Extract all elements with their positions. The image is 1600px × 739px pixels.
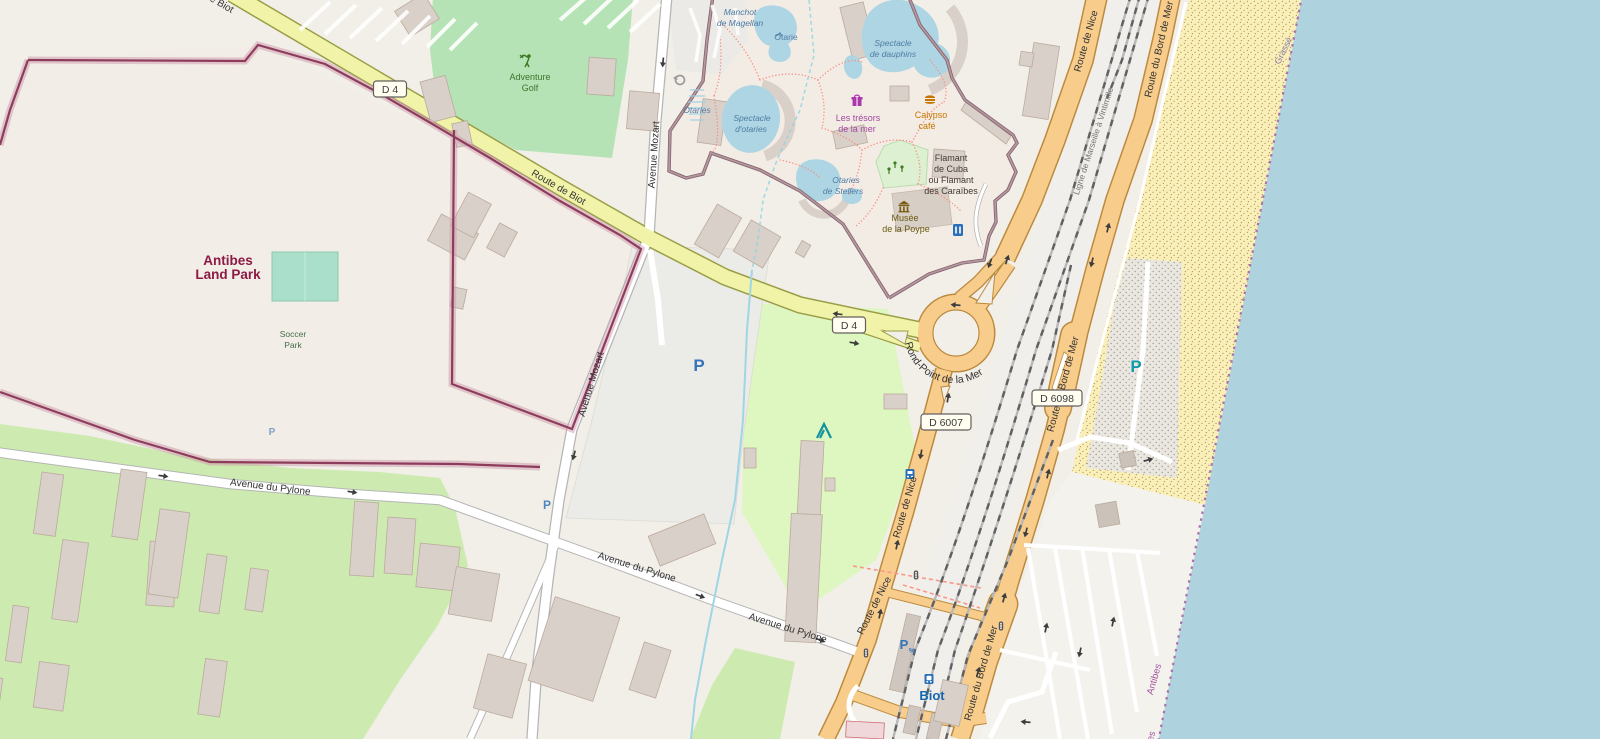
svg-text:Golf: Golf xyxy=(522,83,539,93)
svg-text:Flamant: Flamant xyxy=(935,153,968,163)
svg-text:Otaries: Otaries xyxy=(832,175,860,185)
svg-text:P: P xyxy=(543,498,551,512)
svg-text:Biot: Biot xyxy=(919,688,945,703)
svg-text:de Magellan: de Magellan xyxy=(717,18,764,28)
svg-text:D 6007: D 6007 xyxy=(929,417,963,429)
svg-text:de Cuba: de Cuba xyxy=(934,164,968,174)
svg-text:Spectacle: Spectacle xyxy=(874,38,912,48)
svg-text:D 4: D 4 xyxy=(841,320,858,332)
svg-text:d'otaries: d'otaries xyxy=(735,124,768,134)
svg-text:P: P xyxy=(693,356,704,375)
svg-text:de dauphins: de dauphins xyxy=(870,49,917,59)
svg-text:des Caraïbes: des Caraïbes xyxy=(924,186,978,196)
svg-text:café: café xyxy=(918,121,935,131)
svg-text:D 4: D 4 xyxy=(382,84,399,96)
svg-text:Otaries: Otaries xyxy=(683,105,711,115)
svg-text:Antibes: Antibes xyxy=(203,253,253,268)
svg-text:D 6098: D 6098 xyxy=(1040,393,1074,405)
svg-text:de la mer: de la mer xyxy=(838,124,876,134)
svg-text:Soccer: Soccer xyxy=(280,329,307,339)
svg-text:ou Flamant: ou Flamant xyxy=(928,175,974,185)
svg-text:P: P xyxy=(900,637,909,652)
svg-text:Spectacle: Spectacle xyxy=(733,113,771,123)
svg-text:Adventure: Adventure xyxy=(509,72,550,82)
svg-text:de la Poype: de la Poype xyxy=(882,224,930,234)
svg-text:%: % xyxy=(909,648,916,655)
svg-text:Land Park: Land Park xyxy=(195,267,261,282)
svg-text:P: P xyxy=(1130,357,1141,376)
svg-text:Park: Park xyxy=(284,340,302,350)
svg-text:P: P xyxy=(269,427,276,438)
svg-text:Les trésors: Les trésors xyxy=(836,113,881,123)
svg-text:Calypso: Calypso xyxy=(915,110,948,120)
svg-text:Otarie: Otarie xyxy=(774,32,797,42)
svg-text:de Stellers: de Stellers xyxy=(823,186,864,196)
svg-text:Musée: Musée xyxy=(891,213,918,223)
svg-text:Manchot: Manchot xyxy=(724,7,757,17)
